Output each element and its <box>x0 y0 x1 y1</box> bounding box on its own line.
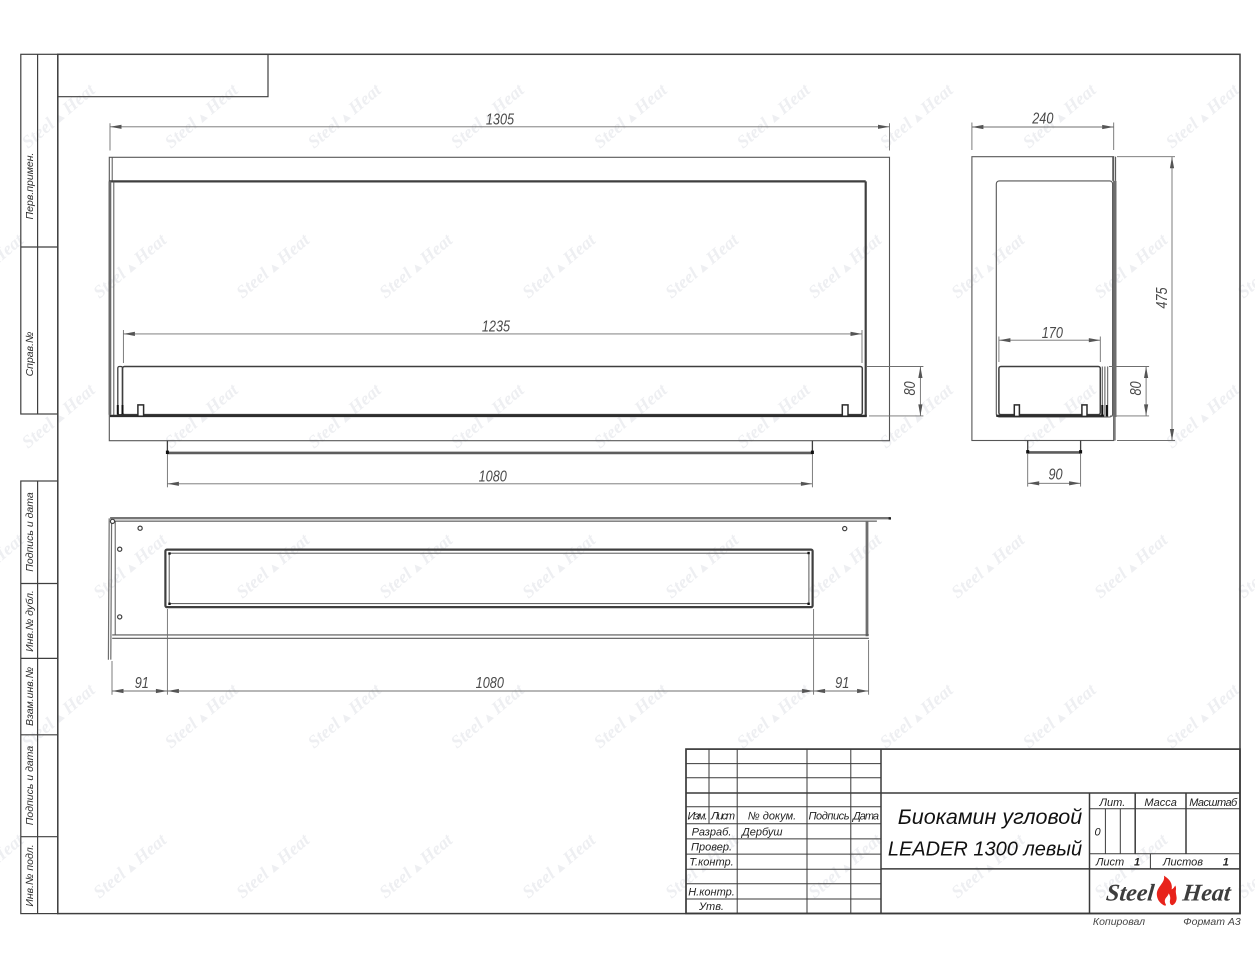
svg-text:Взам.инв.№: Взам.инв.№ <box>24 667 36 726</box>
svg-text:Провер.: Провер. <box>691 842 732 854</box>
svg-text:Перв.примен.: Перв.примен. <box>24 153 36 220</box>
svg-text:Копировал: Копировал <box>1093 916 1145 928</box>
svg-text:91: 91 <box>835 675 849 692</box>
svg-text:Листов: Листов <box>1162 857 1203 869</box>
svg-text:80: 80 <box>902 381 919 395</box>
svg-text:1080: 1080 <box>479 468 507 485</box>
svg-text:Лист: Лист <box>1095 857 1124 869</box>
svg-text:475: 475 <box>1154 287 1171 308</box>
svg-text:Утв.: Утв. <box>698 901 724 913</box>
svg-text:1: 1 <box>1134 857 1140 869</box>
svg-text:1305: 1305 <box>486 111 514 128</box>
svg-text:170: 170 <box>1042 325 1063 342</box>
svg-text:Подпись: Подпись <box>809 811 850 823</box>
svg-text:Справ.№: Справ.№ <box>24 332 36 377</box>
svg-text:Heat: Heat <box>1180 881 1233 907</box>
svg-text:91: 91 <box>135 675 149 692</box>
svg-text:LEADER 1300 левый: LEADER 1300 левый <box>888 839 1082 861</box>
svg-text:Масштаб: Масштаб <box>1189 797 1238 809</box>
svg-text:Лит.: Лит. <box>1099 797 1126 809</box>
svg-text:Т.контр.: Т.контр. <box>689 857 733 869</box>
svg-text:240: 240 <box>1031 110 1053 127</box>
svg-text:Дербуш: Дербуш <box>740 826 783 838</box>
svg-text:Steel: Steel <box>1105 881 1156 907</box>
svg-text:Формат А3: Формат А3 <box>1183 916 1241 928</box>
svg-text:Изм.: Изм. <box>688 811 708 823</box>
svg-text:0: 0 <box>1094 826 1101 838</box>
svg-text:Биокамин угловой: Биокамин угловой <box>898 805 1082 829</box>
svg-text:Разраб.: Разраб. <box>692 826 732 838</box>
svg-text:1235: 1235 <box>482 319 510 336</box>
svg-text:Инв.№ дубл.: Инв.№ дубл. <box>24 590 36 652</box>
svg-text:90: 90 <box>1048 466 1062 483</box>
svg-text:Инв.№ подл.: Инв.№ подл. <box>24 844 36 906</box>
svg-text:Подпись и дата: Подпись и дата <box>24 746 36 826</box>
svg-text:Подпись и дата: Подпись и дата <box>24 492 36 572</box>
svg-text:Лист: Лист <box>710 811 735 823</box>
svg-text:№ докум.: № докум. <box>748 811 796 823</box>
svg-text:Масса: Масса <box>1144 797 1177 809</box>
svg-text:80: 80 <box>1128 381 1145 395</box>
svg-text:Н.контр.: Н.контр. <box>688 886 735 898</box>
svg-text:Дата: Дата <box>851 811 879 823</box>
svg-text:1080: 1080 <box>476 675 504 692</box>
svg-text:1: 1 <box>1223 857 1229 869</box>
